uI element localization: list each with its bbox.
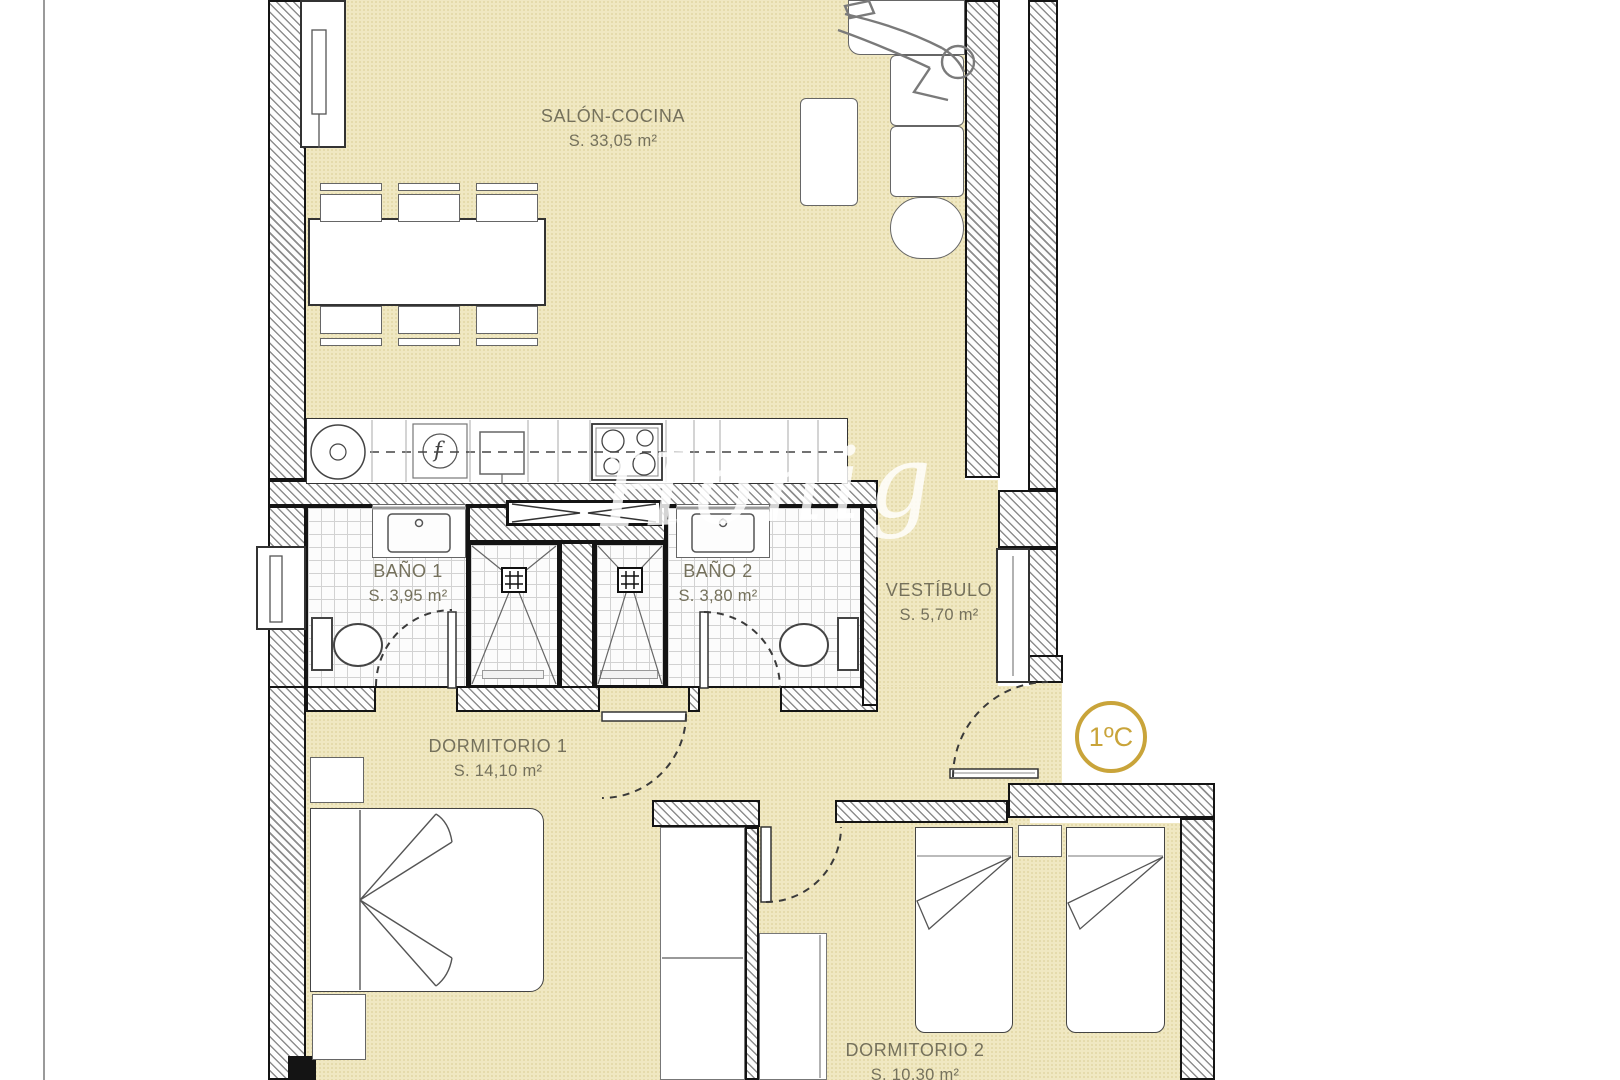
room-area: S. 10,30 m² — [846, 1063, 985, 1080]
appliance-f-icon: f — [434, 438, 442, 462]
unit-badge: 1ºC — [1075, 701, 1147, 773]
nightstand-dorm2 — [1018, 825, 1062, 857]
label-salon: SALÓN-COCINA S. 33,05 m² — [541, 103, 685, 153]
duct-shaft — [506, 500, 662, 526]
nightstand-dorm1-top — [310, 757, 364, 803]
label-vestibulo: VESTÍBULO S. 5,70 m² — [886, 577, 992, 627]
entry-door-frame — [996, 548, 1030, 683]
shower2 — [594, 542, 666, 688]
room-name: VESTÍBULO — [886, 577, 992, 603]
room-name: BAÑO 1 — [368, 558, 447, 584]
sofa-chaise — [848, 0, 965, 55]
label-bano1: BAÑO 1 S. 3,95 m² — [368, 558, 447, 608]
kitchen-counter — [306, 418, 848, 484]
nightstand-dorm1-bottom — [312, 994, 366, 1060]
shower2-threshold — [600, 670, 658, 679]
sink-counter-bath1 — [372, 504, 466, 558]
shower1 — [468, 542, 560, 688]
bed-double-dorm1 — [310, 808, 544, 992]
chair — [476, 194, 538, 222]
chair — [320, 194, 382, 222]
wall-salon-right — [965, 0, 1000, 478]
room-name: DORMITORIO 2 — [846, 1037, 985, 1063]
room-area: S. 3,80 m² — [678, 584, 757, 608]
page-border-line — [43, 0, 45, 1080]
bed-single-dorm2-right — [1066, 827, 1165, 1033]
closet-dorm1 — [660, 827, 745, 1080]
wall-shower-partition — [560, 542, 594, 688]
chair — [320, 306, 382, 334]
wall-between-closets — [745, 827, 759, 1080]
wall-right-lower — [1180, 818, 1215, 1080]
room-area: S. 3,95 m² — [368, 584, 447, 608]
floor-entry-recess — [1030, 683, 1062, 783]
sink-counter-bath2 — [676, 504, 770, 558]
label-dormitorio2: DORMITORIO 2 S. 10,30 m² — [846, 1037, 985, 1080]
room-area: S. 5,70 m² — [886, 603, 992, 627]
bed-single-dorm2-left — [915, 827, 1013, 1033]
room-area: S. 14,10 m² — [429, 759, 568, 783]
wall-exterior-right-mid — [1028, 548, 1058, 658]
sofa-cushion — [890, 55, 964, 126]
closet-dorm2 — [759, 933, 827, 1080]
room-name: BAÑO 2 — [678, 558, 757, 584]
wall-right-step — [998, 490, 1058, 548]
wall-left-lower — [268, 686, 306, 1080]
room-name: DORMITORIO 1 — [429, 733, 568, 759]
chair — [398, 194, 460, 222]
chair — [476, 183, 538, 191]
wall-below-entry — [1008, 783, 1215, 818]
wall-entry-jamb — [1028, 655, 1063, 683]
sofa-armrest — [890, 197, 964, 259]
chair — [476, 338, 538, 346]
wall-hall-dorm2 — [835, 800, 1008, 823]
wall-band-seg3 — [688, 686, 700, 712]
chair — [398, 306, 460, 334]
unit-badge-label: 1ºC — [1089, 722, 1133, 753]
chair — [320, 338, 382, 346]
wall-band-seg2 — [456, 686, 600, 712]
wall-closet-top — [652, 800, 760, 827]
dining-table — [308, 218, 546, 306]
room-area: S. 33,05 m² — [541, 129, 685, 153]
wall-band-seg1 — [306, 686, 376, 712]
floorplan-page: f SALÓN-COCINA S. 33,05 m² BAÑO 1 S. 3,9… — [0, 0, 1620, 1080]
wall-bath2-right — [862, 506, 878, 706]
wall-exterior-right-top — [1028, 0, 1058, 490]
chair — [476, 306, 538, 334]
room-name: SALÓN-COCINA — [541, 103, 685, 129]
sofa-cushion — [890, 126, 964, 197]
chair — [320, 183, 382, 191]
shower1-threshold — [482, 670, 544, 679]
chair — [398, 183, 460, 191]
label-dormitorio1: DORMITORIO 1 S. 14,10 m² — [429, 733, 568, 783]
chair — [398, 338, 460, 346]
window-bath1-left — [256, 546, 306, 630]
window-salon-left — [300, 0, 346, 148]
label-bano2: BAÑO 2 S. 3,80 m² — [678, 558, 757, 608]
coffee-table — [800, 98, 858, 206]
